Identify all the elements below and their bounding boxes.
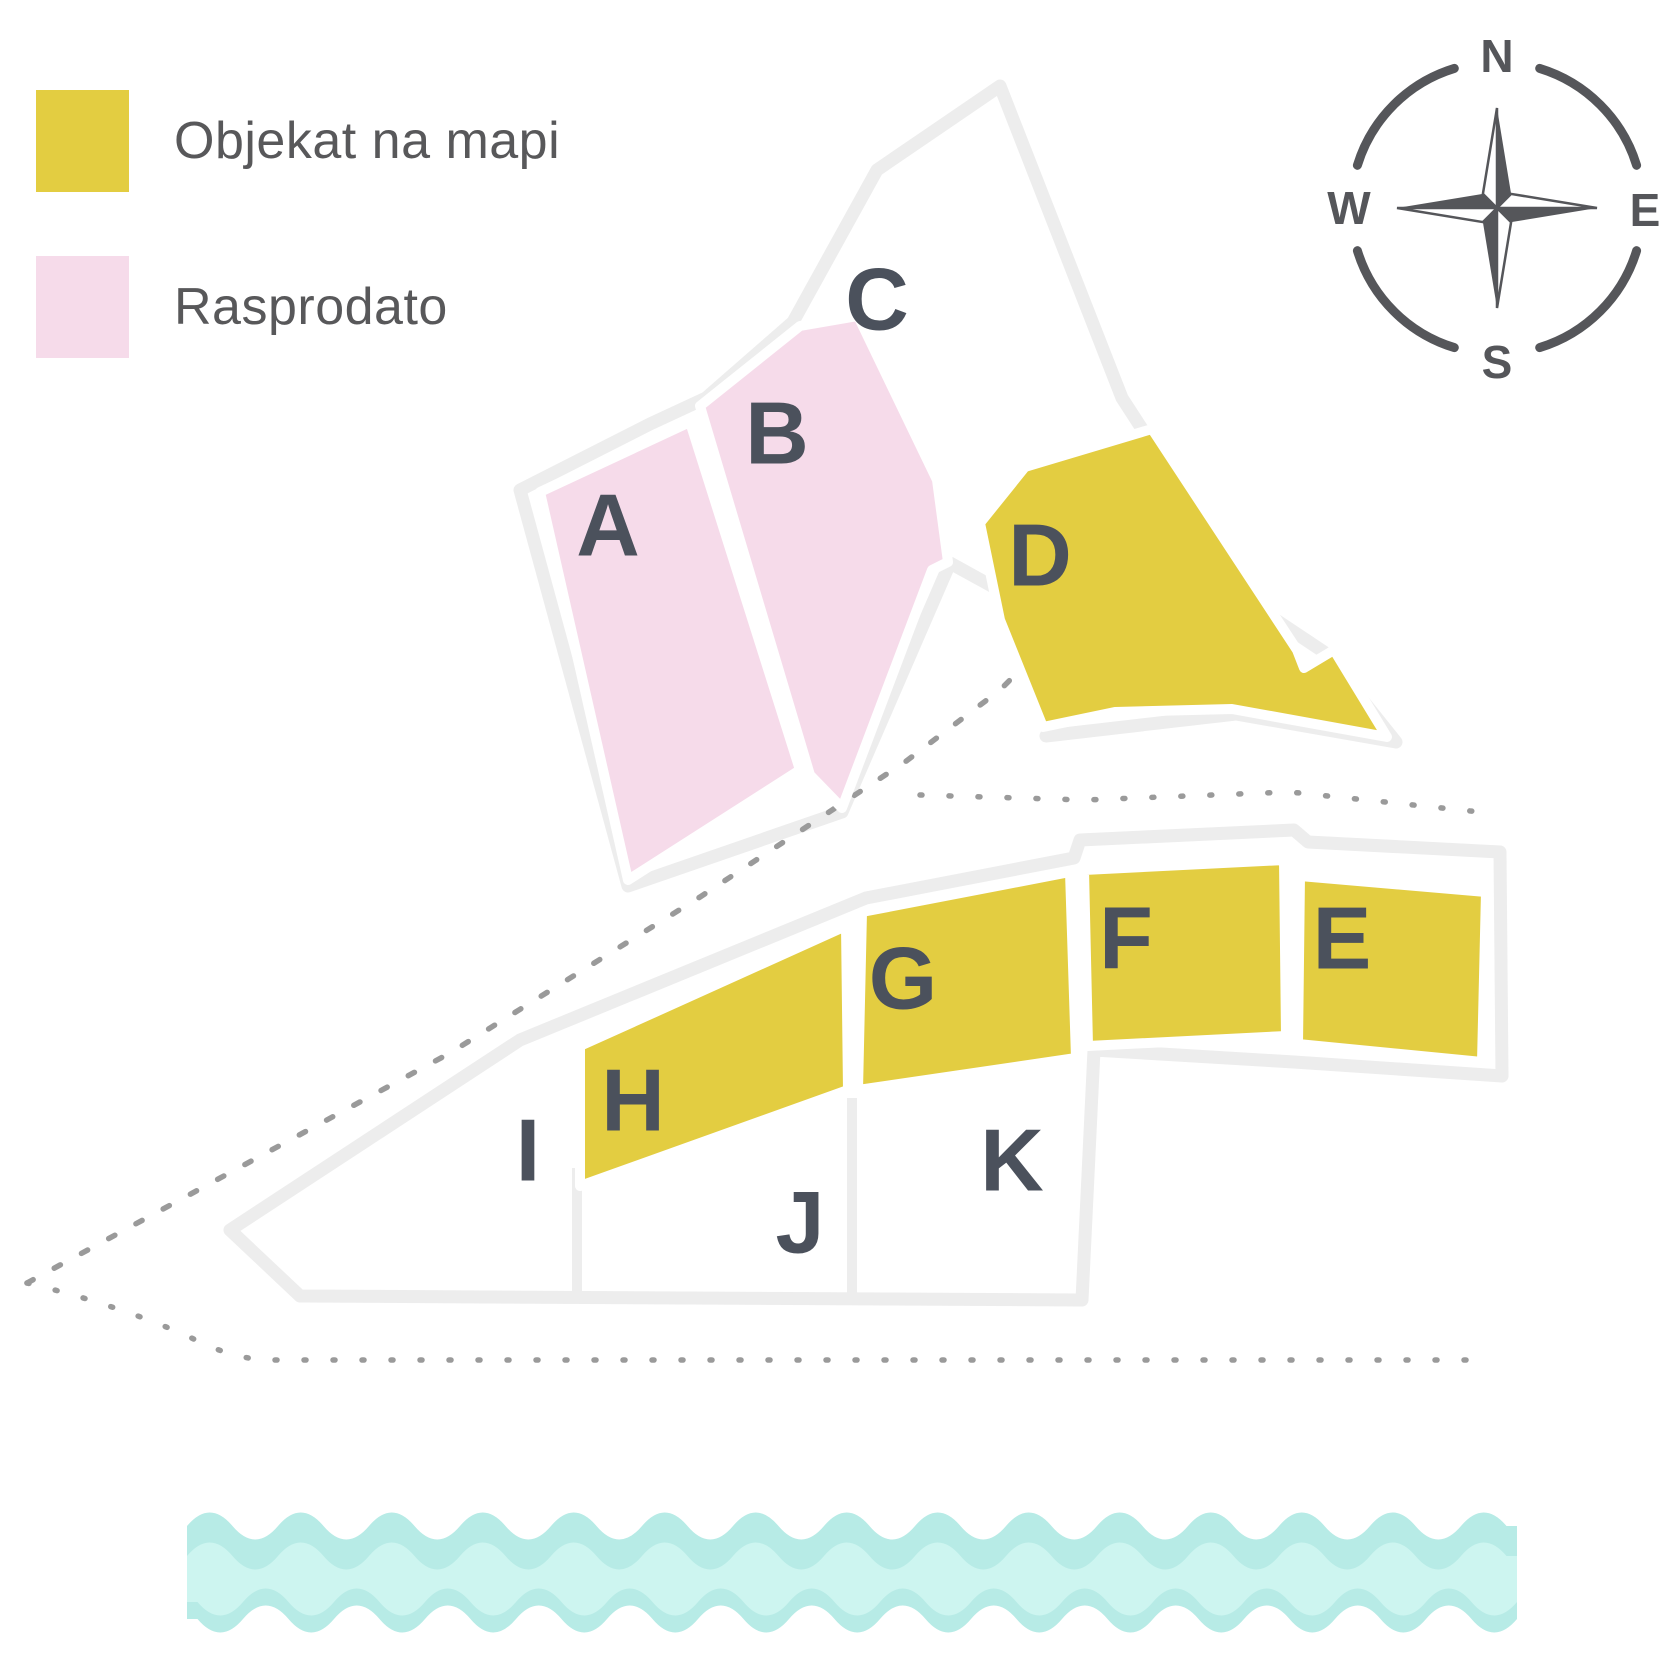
compass-label-e: E: [1630, 184, 1661, 236]
compass: N E S W: [1327, 30, 1660, 388]
legend-label-sold: Rasprodato: [174, 277, 448, 337]
sea-wave-highlight: [187, 1543, 1517, 1616]
legend-swatch-available: [36, 90, 129, 192]
zone-i-label: I: [516, 1101, 540, 1200]
legend-swatch-sold: [36, 256, 129, 358]
zone-f-label: F: [1099, 889, 1153, 988]
legend: Objekat na mapi Rasprodato: [36, 90, 560, 422]
zone-j-label: J: [776, 1173, 825, 1272]
zone-e-label: E: [1313, 889, 1372, 988]
sea-wave: [187, 1513, 1517, 1633]
path-dotted-right: [920, 792, 1480, 812]
zone-b-label: B: [745, 384, 809, 483]
zone-a-label: A: [576, 476, 640, 575]
zone-c-label: C: [845, 250, 909, 349]
zone-d-label: D: [1008, 506, 1072, 605]
zone-g-label: G: [869, 929, 937, 1028]
zone-h-label: H: [601, 1051, 665, 1150]
compass-label-w: W: [1327, 182, 1371, 234]
zone-k-label: K: [980, 1111, 1044, 1210]
legend-item-available: Objekat na mapi: [36, 90, 560, 192]
compass-label-n: N: [1480, 30, 1513, 82]
legend-label-available: Objekat na mapi: [174, 111, 560, 171]
compass-star-icon: [1397, 108, 1597, 308]
available-color-swatch: [36, 90, 129, 192]
sold-color-swatch: [36, 256, 129, 358]
legend-item-sold: Rasprodato: [36, 256, 560, 358]
compass-label-s: S: [1482, 336, 1513, 388]
